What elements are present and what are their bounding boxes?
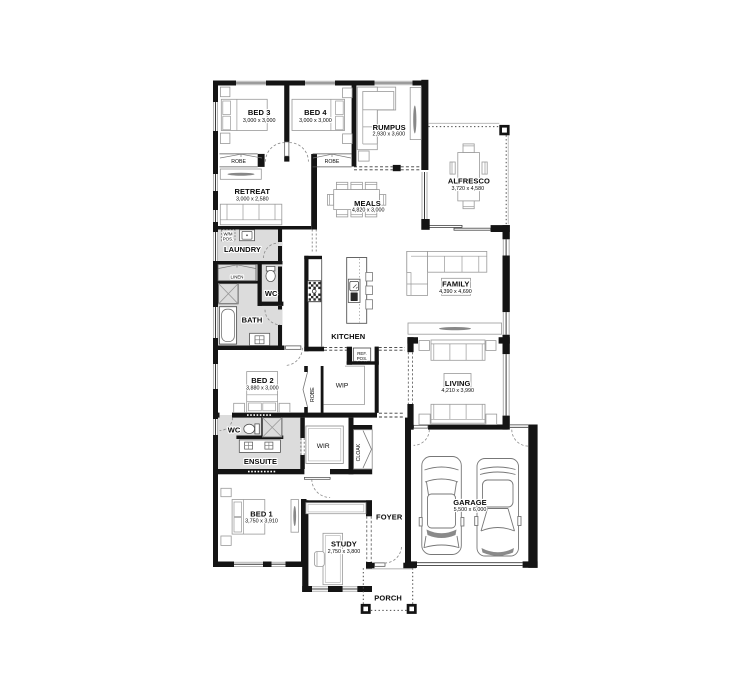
svg-text:ROBE: ROBE [310,387,316,402]
svg-text:ROBE: ROBE [231,159,246,165]
svg-text:STUDY: STUDY [331,540,357,549]
svg-text:ROBE: ROBE [325,159,340,165]
svg-text:FAMILY: FAMILY [442,279,469,288]
svg-text:LIVING: LIVING [445,379,471,388]
svg-text:CLOAK: CLOAK [356,443,362,461]
svg-text:BED 4: BED 4 [304,108,327,117]
svg-text:WC: WC [228,426,241,435]
svg-text:3,880 x 3,000: 3,880 x 3,000 [246,386,279,392]
svg-text:WIR: WIR [317,443,330,450]
svg-text:GARAGE: GARAGE [453,498,487,507]
svg-text:KITCHEN: KITCHEN [331,332,365,341]
svg-text:RETREAT: RETREAT [235,187,271,196]
svg-text:BED 2: BED 2 [251,376,274,385]
svg-text:5,500 x 6,000: 5,500 x 6,000 [454,507,487,513]
svg-text:ALFRESCO: ALFRESCO [448,176,490,185]
svg-text:2,750 x 3,800: 2,750 x 3,800 [328,549,361,555]
svg-text:PORCH: PORCH [374,593,402,602]
svg-text:4,820 x 3,000: 4,820 x 3,000 [352,207,385,213]
svg-text:WC: WC [265,289,278,298]
svg-text:WIP: WIP [336,383,349,390]
svg-text:2,930 x 3,600: 2,930 x 3,600 [372,132,405,138]
svg-text:POS.: POS. [223,236,234,241]
svg-text:BED 3: BED 3 [248,108,271,117]
svg-text:FOYER: FOYER [376,513,403,522]
svg-text:POS.: POS. [357,356,368,361]
svg-text:3,000 x 2,580: 3,000 x 2,580 [236,197,269,203]
svg-text:4,210 x 3,990: 4,210 x 3,990 [441,388,474,394]
svg-text:BED 1: BED 1 [250,509,273,518]
svg-text:3,750 x 3,910: 3,750 x 3,910 [245,519,278,525]
svg-text:BATH: BATH [242,315,263,324]
svg-text:3,720 x 4,580: 3,720 x 4,580 [451,186,484,192]
svg-text:ENSUITE: ENSUITE [244,457,277,466]
svg-text:3,000 x 3,000: 3,000 x 3,000 [243,118,276,124]
svg-text:LAUNDRY: LAUNDRY [224,245,261,254]
svg-text:LINEN: LINEN [231,275,244,280]
svg-text:4,390 x 4,690: 4,390 x 4,690 [439,289,472,295]
svg-text:3,000 x 3,000: 3,000 x 3,000 [299,118,332,124]
